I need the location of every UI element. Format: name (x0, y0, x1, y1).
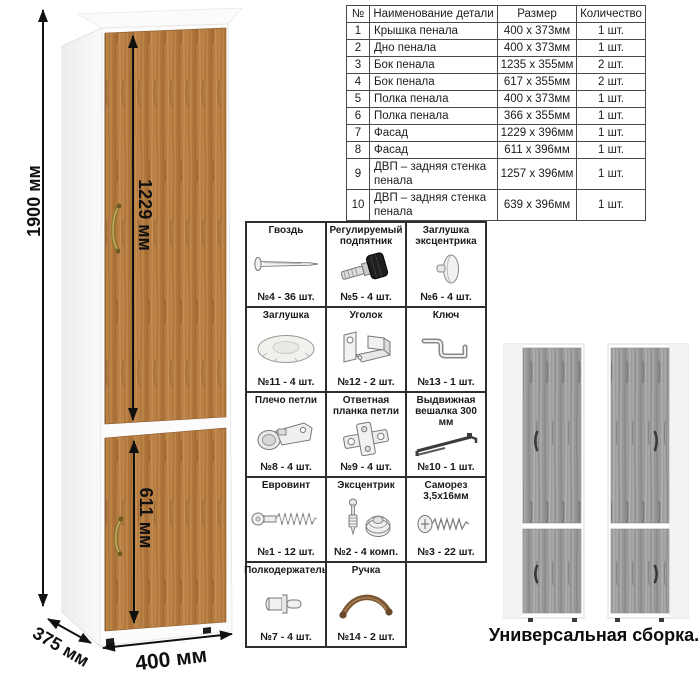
lower-door (105, 428, 226, 631)
hardware-cell-pullout-rail: Выдвижная вешалка 300 мм №10 - 1 шт. (405, 391, 487, 478)
col-header-qty: Количество (577, 6, 646, 23)
hardware-cell-hinge-plate: Ответная планка петли №9 - 4 шт. (325, 391, 407, 478)
hardware-cell-self-tapping-screw: Саморез 3,5х16мм №3 - 22 шт. (405, 476, 487, 563)
hinge-plate-icon (339, 420, 393, 458)
hardware-cell-handle: Ручка №14 - 2 шт. (325, 561, 407, 648)
cam-lock-icon (338, 498, 394, 540)
table-row: 2 Дно пенала 400 х 373мм 1 шт. (347, 40, 646, 57)
dim-label-width: 400 мм (134, 644, 208, 676)
confirmat-screw-icon (251, 508, 321, 530)
hardware-cell-hinge-arm: Плечо петли №8 - 4 шт. (245, 391, 327, 478)
table-row: 4 Бок пенала 617 х 355мм 2 шт. (347, 74, 646, 91)
cover-cap-icon (255, 332, 317, 366)
col-header-name: Наименование детали (370, 6, 498, 23)
col-header-num: № (347, 6, 370, 23)
hardware-cell-cam-lock: Эксцентрик №2 - 4 комп (325, 476, 407, 563)
hardware-cell-confirmat-screw: Евровинт №1 - 12 шт. (245, 476, 327, 563)
handle-icon (335, 586, 397, 622)
cabinet-foot-right (203, 627, 211, 634)
pullout-rail-icon (413, 431, 479, 459)
table-row: 6 Полка пенала 366 х 355мм 1 шт. (347, 108, 646, 125)
self-tapping-screw-icon (415, 511, 477, 537)
variant-cabinet-right (608, 344, 688, 622)
variants-caption: Универсальная сборка. (488, 625, 700, 646)
table-row: 7 Фасад 1229 х 396мм 1 шт. (347, 125, 646, 142)
table-row: 9 ДВП – задняя стенка пенала 1257 х 396м… (347, 159, 646, 190)
angle-bracket-icon (338, 329, 394, 369)
cam-cover-icon (426, 251, 466, 287)
table-row: 1 Крышка пенала 400 х 373мм 1 шт. (347, 23, 646, 40)
hex-key-icon (418, 332, 474, 366)
table-row: 10 ДВП – задняя стенка пенала 639 х 396м… (347, 190, 646, 221)
hardware-row: Евровинт №1 - 12 шт. Эксцентрик (245, 476, 485, 563)
hardware-cell-adjustable-foot: Регулируемый подпятник №5 - 4 шт. (325, 221, 407, 308)
parts-table-header-row: № Наименование детали Размер Количество (347, 6, 646, 23)
adjustable-foot-icon (337, 251, 395, 287)
assembly-variants (494, 336, 700, 628)
hardware-legend: Гвоздь №4 - 36 шт. Регулируемый подпятни… (245, 221, 485, 648)
hardware-row: Заглушка №11 - 4 шт. Уголок (245, 306, 485, 393)
hinge-arm-icon (256, 415, 316, 453)
hardware-cell-nail: Гвоздь №4 - 36 шт. (245, 221, 327, 308)
hardware-row: Гвоздь №4 - 36 шт. Регулируемый подпятни… (245, 221, 485, 308)
hardware-cell-cover-cap: Заглушка №11 - 4 шт. (245, 306, 327, 393)
col-header-size: Размер (498, 6, 577, 23)
cabinet-foot-left (106, 638, 114, 646)
variant-cabinet-left (504, 344, 584, 622)
hardware-cell-hex-key: Ключ №13 - 1 шт. (405, 306, 487, 393)
nail-icon (252, 255, 320, 273)
dim-label-height: 1900 мм (24, 165, 44, 237)
cabinet-drawing: 1900 мм 1229 мм 611 мм 375 мм 400 мм (0, 0, 260, 683)
hardware-cell-cam-cover: Заглушка эксцентрика №6 - 4 шт. (405, 221, 487, 308)
table-row: 8 Фасад 611 х 396мм 1 шт. (347, 142, 646, 159)
hardware-row: Полкодержатель №7 - 4 шт. Ручка (245, 561, 485, 648)
table-row: 5 Полка пенала 400 х 373мм 1 шт. (347, 91, 646, 108)
hardware-cell-angle-bracket: Уголок №12 - 2 шт. (325, 306, 407, 393)
parts-table: № Наименование детали Размер Количество … (346, 5, 645, 221)
hardware-row: Плечо петли №8 - 4 шт. Ответная планка п… (245, 391, 485, 478)
hardware-cell-shelf-pin: Полкодержатель №7 - 4 шт. (245, 561, 327, 648)
table-row: 3 Бок пенала 1235 х 355мм 2 шт. (347, 57, 646, 74)
assembly-sheet: 1900 мм 1229 мм 611 мм 375 мм 400 мм № Н… (0, 0, 700, 683)
dim-label-upper-door: 1229 мм (135, 179, 155, 251)
shelf-pin-icon (263, 593, 309, 615)
upper-door (105, 28, 226, 424)
cabinet-side-panel (62, 28, 102, 648)
dim-label-lower-door: 611 мм (136, 488, 156, 549)
